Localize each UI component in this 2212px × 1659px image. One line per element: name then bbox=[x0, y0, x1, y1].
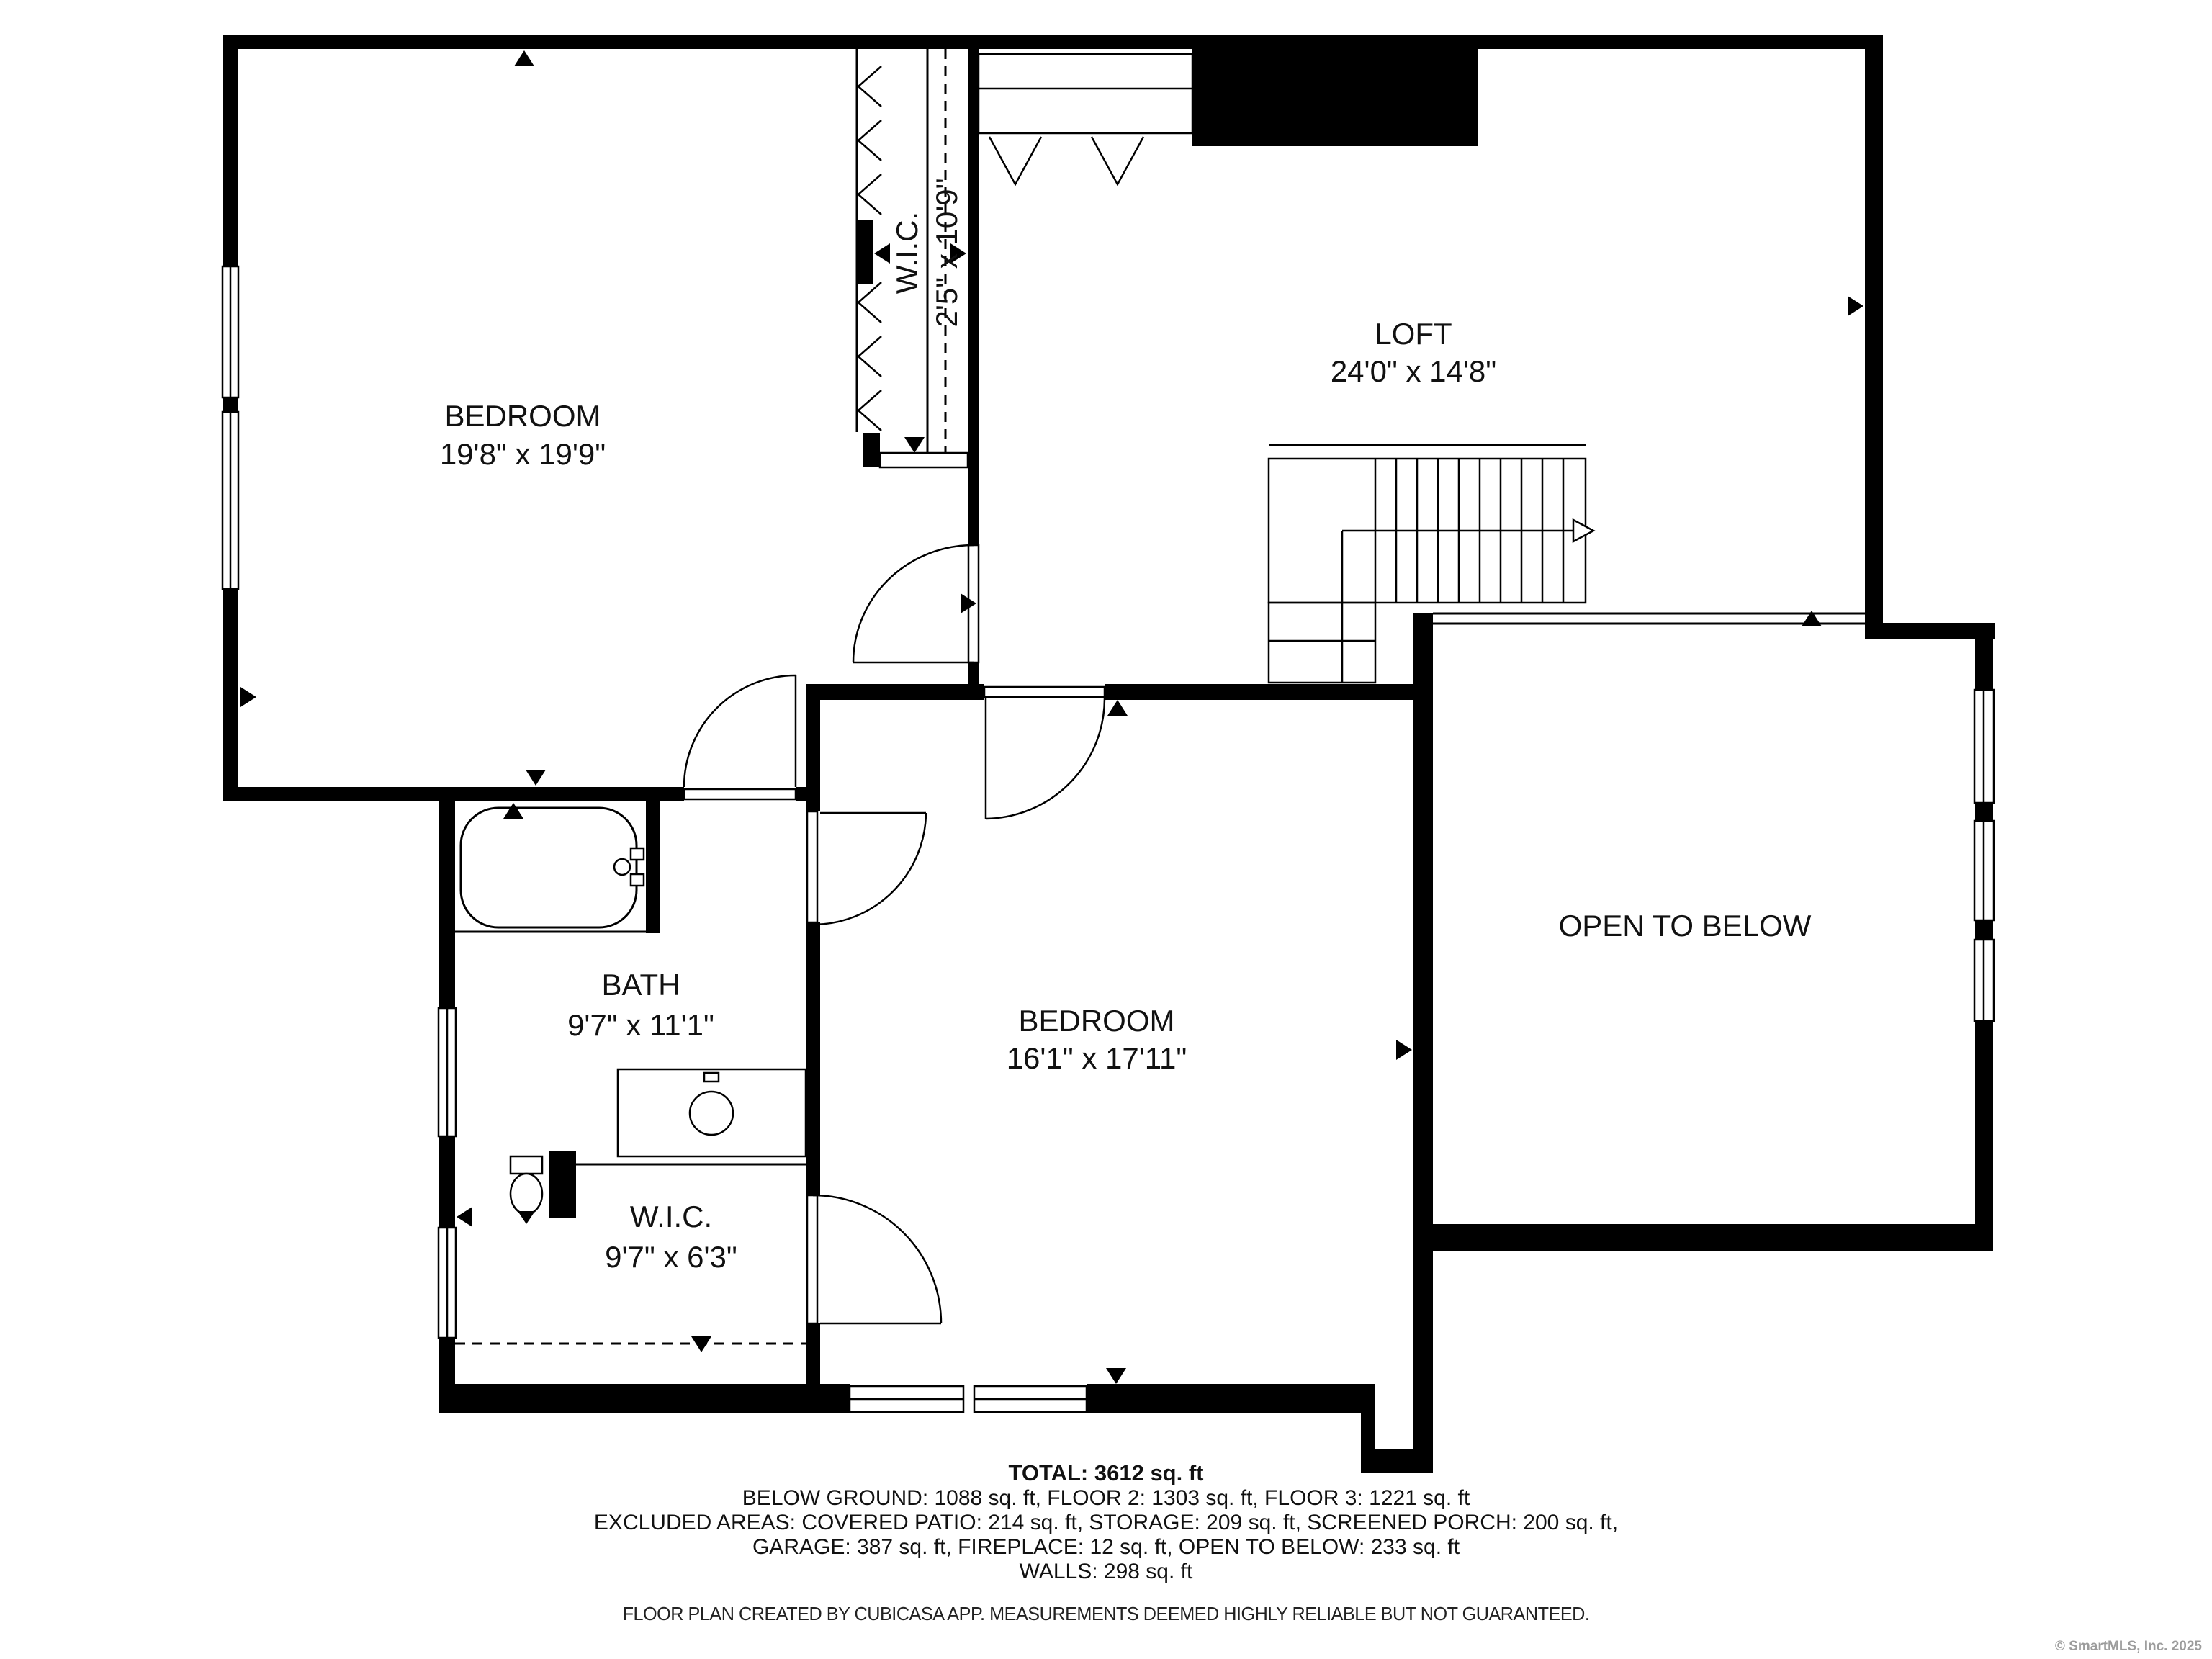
toilet bbox=[511, 1156, 542, 1214]
loft-closet bbox=[979, 54, 1192, 184]
measurement-markers bbox=[240, 50, 1863, 1384]
copyright-text: © SmartMLS, Inc. 2025 bbox=[2055, 1639, 2202, 1655]
door-bedroom1 bbox=[853, 545, 979, 662]
hanging-clothes-icon bbox=[1092, 137, 1143, 184]
sink-vanity bbox=[618, 1069, 806, 1156]
room-dims-wic1: 2'5" x 10'9" bbox=[930, 179, 963, 328]
hanging-clothes-icon bbox=[989, 137, 1041, 184]
doors bbox=[684, 453, 1105, 1323]
floor-plan-drawing: BEDROOM 19'8" x 19'9" W.I.C. 2'5" x 10'9… bbox=[0, 0, 2212, 1659]
window-open-below-1 bbox=[1974, 690, 1994, 803]
window-open-below-3 bbox=[1974, 940, 1994, 1021]
room-label-bedroom2: BEDROOM bbox=[1018, 1004, 1174, 1038]
walls-area: WALLS: 298 sq. ft bbox=[0, 1560, 2212, 1584]
toilet-bowl-icon bbox=[511, 1174, 542, 1214]
excluded-areas-1: EXCLUDED AREAS: COVERED PATIO: 214 sq. f… bbox=[0, 1511, 2212, 1535]
window-bedroom1-lower bbox=[222, 412, 238, 589]
room-dims-bedroom1: 19'8" x 19'9" bbox=[440, 437, 606, 471]
door-bedroom2 bbox=[984, 687, 1105, 819]
door-wic2 bbox=[807, 1195, 941, 1323]
room-label-bath: BATH bbox=[602, 968, 680, 1002]
window-wic2 bbox=[439, 1228, 456, 1338]
room-dims-wic2: 9'7" x 6'3" bbox=[605, 1240, 737, 1274]
floor-areas: BELOW GROUND: 1088 sq. ft, FLOOR 2: 1303… bbox=[0, 1486, 2212, 1511]
disclaimer-text: FLOOR PLAN CREATED BY CUBICASA APP. MEAS… bbox=[33, 1603, 2179, 1625]
fireplace-mass bbox=[1192, 43, 1478, 146]
room-dims-loft: 24'0" x 14'8" bbox=[1331, 354, 1496, 388]
window-bath bbox=[439, 1008, 456, 1136]
room-label-wic1: W.I.C. bbox=[890, 212, 924, 294]
room-label-wic2: W.I.C. bbox=[630, 1200, 712, 1233]
excluded-areas-2: GARAGE: 387 sq. ft, FIREPLACE: 12 sq. ft… bbox=[0, 1535, 2212, 1560]
room-label-loft: LOFT bbox=[1375, 317, 1452, 351]
door-bath bbox=[684, 675, 796, 799]
total-area: TOTAL: 3612 sq. ft bbox=[0, 1460, 2212, 1486]
window-bedroom2-left bbox=[850, 1386, 963, 1412]
walls bbox=[223, 35, 1995, 1473]
wic1-opening bbox=[880, 453, 968, 467]
floor-plan-page: BEDROOM 19'8" x 19'9" W.I.C. 2'5" x 10'9… bbox=[0, 0, 2212, 1659]
sink-icon bbox=[690, 1092, 733, 1135]
bathtub bbox=[461, 808, 644, 927]
window-bedroom2-right bbox=[974, 1386, 1087, 1412]
stairs-arrow-icon bbox=[1573, 520, 1593, 541]
tub-faucet-icon bbox=[614, 859, 630, 875]
area-summary: TOTAL: 3612 sq. ft BELOW GROUND: 1088 sq… bbox=[0, 1460, 2212, 1584]
window-open-below-2 bbox=[1974, 821, 1994, 920]
room-label-open-below: OPEN TO BELOW bbox=[1559, 909, 1812, 943]
door-bath-bedroom2 bbox=[807, 811, 926, 925]
window-bedroom1-upper bbox=[222, 266, 238, 397]
room-dims-bedroom2: 16'1" x 17'11" bbox=[1007, 1041, 1187, 1075]
room-label-bedroom1: BEDROOM bbox=[444, 399, 601, 433]
room-dims-bath: 9'7" x 11'1" bbox=[567, 1008, 714, 1042]
